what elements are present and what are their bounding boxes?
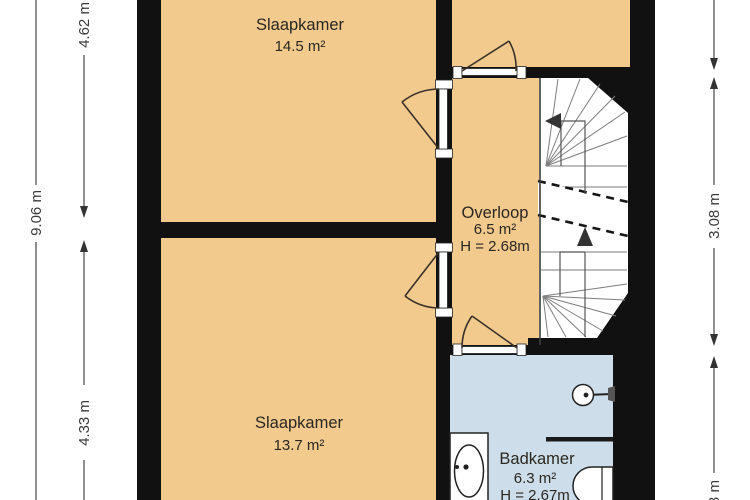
dim-left-outer-label: 9.06 m: [28, 190, 45, 236]
dimension-right-upper: [710, 0, 718, 70]
toilet-icon: [573, 467, 613, 500]
wall-right-bathroom: [613, 345, 655, 500]
dim-left-top-label: 4.62 m: [76, 2, 93, 48]
shower-divider: [546, 437, 613, 442]
wall-right-stairs: [628, 67, 655, 345]
wall-center-lower: [436, 355, 450, 500]
label-slaapkamer-top-area: 14.5 m²: [275, 38, 326, 55]
label-overloop-name: Overloop: [462, 204, 529, 222]
label-badkamer-name: Badkamer: [499, 450, 575, 468]
room-above-landing: [452, 0, 630, 67]
floor-plan-svg: Slaapkamer 14.5 m² Slaapkamer 13.7 m² Ov…: [0, 0, 750, 500]
label-badkamer-area: 6.3 m²: [514, 470, 557, 487]
label-badkamer-height: H = 2.67m: [500, 487, 570, 500]
dim-left-bottom-label: 4.33 m: [76, 400, 93, 446]
dimension-left-top: 4.62 m: [76, 2, 93, 218]
dimension-right-bathroom: 2.93 m: [706, 356, 723, 500]
label-slaapkamer-bottom-name: Slaapkamer: [255, 414, 344, 432]
label-slaapkamer-top-name: Slaapkamer: [256, 16, 345, 34]
room-slaapkamer-bottom: [161, 238, 436, 500]
dimension-left-bottom: 4.33 m: [76, 240, 93, 500]
label-overloop-height: H = 2.68m: [460, 238, 530, 255]
label-overloop-area: 6.5 m²: [474, 221, 517, 238]
label-slaapkamer-bottom-area: 13.7 m²: [274, 437, 325, 454]
dim-right-bathroom-label: 2.93 m: [706, 480, 723, 500]
wall-between-bedrooms: [137, 222, 452, 238]
wall-left-outer: [137, 0, 161, 500]
washbasin-icon: [450, 433, 488, 500]
floor-plan: Slaapkamer 14.5 m² Slaapkamer 13.7 m² Ov…: [0, 0, 750, 500]
dimension-left-outer: 9.06 m: [28, 0, 45, 500]
dimension-right-stairwell: 3.08 m: [706, 77, 723, 346]
wall-right-top: [630, 0, 655, 67]
dim-right-stairwell-label: 3.08 m: [706, 193, 723, 239]
